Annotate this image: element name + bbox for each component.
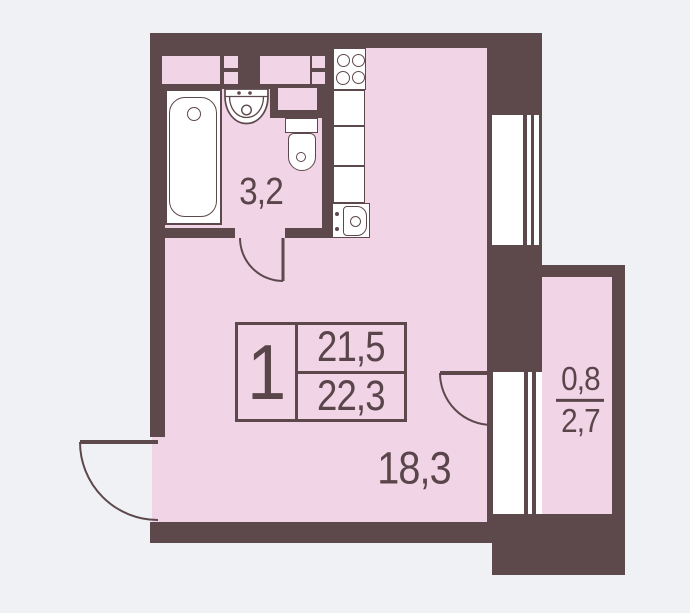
kitchen-sink-drain [350,216,361,227]
total-area-value: 22,3 [317,375,385,418]
stove-burner [352,71,365,84]
living-room-area-label: 18,3 [377,446,451,491]
balcony-area-label: 0,8 2,7 [556,362,604,438]
entrance-opening-floor [152,437,165,522]
living-area-value: 21,5 [317,326,385,369]
living-area-cell: 21,5 [298,325,404,374]
areas-cells: 21,5 22,3 [298,325,404,419]
vent-duct-icon [162,56,220,84]
stove-burner [337,54,350,67]
balcony-door-glazing-line [532,372,536,514]
room-count: 1 [247,333,286,411]
room-count-cell: 1 [238,325,298,419]
vent-duct-icon [224,72,238,84]
balcony-area-reduced: 0,8 [561,362,600,397]
kitchen-counter-icon [333,90,365,203]
wall-bottom-right-block [492,514,625,575]
wall-top-kitchen [333,33,487,48]
vent-duct-icon [260,56,310,84]
total-area-cell: 22,3 [298,374,404,420]
kitchen-sink-tap-dot [335,227,339,231]
bathroom-area-label: 3,2 [239,173,283,211]
wall-bathroom-bottom-left [165,228,235,238]
stove-burner [352,54,365,67]
counter-divider [334,125,364,127]
toilet-icon [285,118,318,133]
toilet-drain [296,152,306,162]
balcony-area-full: 2,7 [561,404,600,439]
window-glazing-line [523,115,527,245]
wall-bathroom-bottom-right [285,228,322,238]
balcony-door-glazing-line [524,372,528,514]
vent-duct-icon [224,56,238,68]
floor-plan: 3,2 18,3 0,8 2,7 1 21,5 22,3 [0,0,690,613]
kitchen-sink-tap-dot [335,212,339,216]
vent-duct-icon [312,56,325,68]
apartment-info-box: 1 21,5 22,3 [235,322,407,422]
vent-duct-icon [312,72,325,84]
vent-duct-icon [278,88,317,110]
stove-burner [336,71,350,85]
wall-left [150,33,165,437]
window-glazing-line [531,115,535,245]
bathtub-drain [187,107,201,121]
counter-divider [334,165,364,167]
entrance-door-swing [80,442,158,520]
wall-bottom [150,522,492,543]
